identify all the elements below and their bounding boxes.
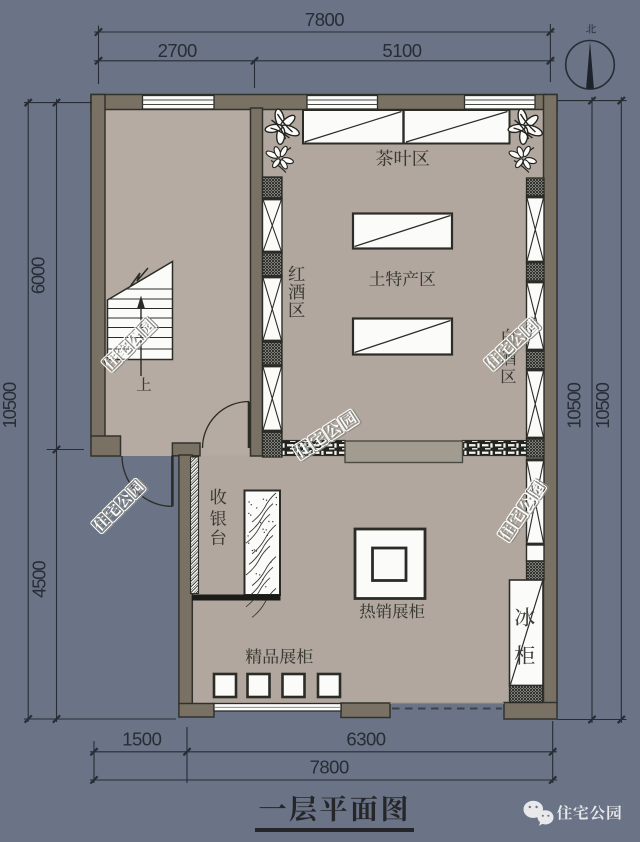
svg-text:10500: 10500 (592, 382, 613, 428)
svg-text:6000: 6000 (28, 257, 49, 294)
svg-text:10500: 10500 (0, 382, 20, 428)
svg-text:10500: 10500 (564, 382, 585, 428)
svg-text:1500: 1500 (122, 728, 161, 749)
svg-text:7800: 7800 (310, 756, 349, 777)
svg-text:5100: 5100 (382, 40, 421, 61)
svg-text:4500: 4500 (29, 561, 50, 598)
svg-text:7800: 7800 (305, 9, 344, 30)
svg-text:6300: 6300 (346, 728, 385, 749)
svg-text:2700: 2700 (158, 40, 197, 61)
